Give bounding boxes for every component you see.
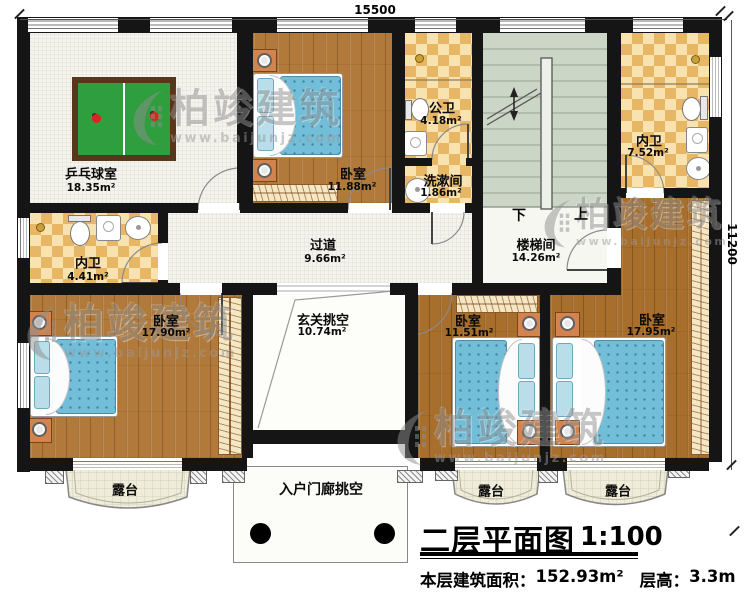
wardrobe	[218, 297, 242, 455]
ac-platform	[45, 470, 64, 484]
wall	[392, 33, 405, 213]
room-area-bedroom-right: 17.95m²	[627, 326, 676, 338]
room-area-bath-right: 7.52m²	[627, 147, 668, 159]
toilet-icon	[700, 96, 708, 120]
plan-scale: 1:100	[580, 522, 663, 552]
ac-platform	[397, 470, 423, 483]
room-area-public-bath: 4.18m²	[420, 115, 461, 127]
dimension-tick	[729, 526, 740, 537]
paddle-icon	[150, 112, 159, 121]
window	[633, 18, 683, 32]
room-stairs	[483, 33, 607, 207]
wardrobe	[250, 184, 338, 202]
window	[567, 459, 665, 470]
room-area-bedroom-left: 17.90m²	[142, 327, 191, 339]
lamp-icon	[522, 316, 537, 331]
window	[415, 18, 456, 32]
wall	[237, 33, 253, 203]
nightstand	[517, 420, 542, 445]
wall	[621, 188, 626, 198]
shower-head-icon	[415, 54, 424, 63]
paddle-icon	[92, 114, 101, 123]
nightstand	[27, 311, 52, 336]
window	[710, 57, 721, 117]
pillow	[518, 343, 535, 379]
column-icon	[374, 523, 395, 544]
window	[73, 459, 182, 470]
nightstand	[517, 312, 542, 337]
nightstand	[251, 49, 277, 72]
pillow	[556, 343, 573, 379]
wall	[182, 458, 247, 471]
lamp-icon	[32, 315, 47, 330]
table-net-line	[123, 83, 125, 155]
wall	[30, 203, 198, 213]
wall	[247, 430, 420, 444]
window	[18, 343, 29, 408]
wall	[390, 283, 405, 295]
terrace-right-label: 露台	[605, 481, 631, 500]
toilet-icon	[682, 97, 701, 121]
porch-void-label: 入户门廊挑空	[279, 479, 363, 499]
nightstand	[27, 418, 52, 443]
room-area-corridor: 9.66m²	[304, 253, 345, 265]
window	[500, 18, 585, 32]
floor-plan-canvas: 柏竣建筑www.baijunjz.com 柏竣建筑www.baijunjz.co…	[0, 0, 750, 596]
wall	[405, 158, 432, 166]
toilet-icon	[70, 221, 90, 246]
wardrobe	[691, 200, 711, 455]
window	[277, 18, 368, 32]
stairs-up-label: 上	[574, 204, 588, 224]
wall	[472, 33, 483, 285]
wall	[30, 458, 73, 471]
room-area-foyer-void: 10.74m²	[298, 326, 347, 338]
room-label-bedroom-top: 卧室	[340, 164, 366, 183]
wall	[537, 458, 567, 471]
shower-head-icon	[36, 223, 45, 232]
wall	[240, 203, 348, 213]
wall	[158, 213, 168, 243]
title-underline	[420, 558, 638, 559]
washer-drum-icon	[410, 137, 421, 148]
shower-head-icon	[691, 55, 700, 64]
dimension-tick	[715, 6, 726, 17]
wall	[405, 203, 430, 213]
nightstand	[555, 420, 580, 445]
ac-platform	[538, 470, 558, 483]
nightstand	[555, 312, 580, 337]
railing-line	[277, 286, 392, 291]
lamp-icon	[522, 424, 537, 439]
room-label-stairwell: 楼梯间	[516, 235, 555, 254]
wall	[664, 188, 709, 198]
room-label-bath-left: 内卫	[75, 253, 101, 272]
wall	[242, 295, 253, 458]
washer-drum-icon	[103, 221, 114, 232]
column-icon	[250, 523, 271, 544]
wall	[607, 33, 621, 198]
washing-machine-icon	[404, 131, 427, 156]
wall	[222, 283, 277, 295]
pillow	[556, 381, 573, 417]
plan-subtitle: 本层建筑面积：152.93m²层高：3.3m	[420, 567, 736, 591]
wall	[465, 203, 472, 213]
title-underline	[420, 552, 638, 556]
room-area-pingpong: 18.35m²	[67, 182, 116, 194]
wall	[405, 283, 418, 458]
dimension-right-label: 11200	[725, 220, 739, 268]
window	[28, 18, 118, 32]
floor-area-value: 152.93m²	[536, 567, 624, 591]
lamp-icon	[257, 53, 272, 68]
wall	[30, 283, 180, 295]
washing-machine-icon	[96, 215, 121, 241]
room-area-bath-left: 4.41m²	[67, 271, 108, 283]
room-area-bedroom-top: 11.88m²	[328, 181, 377, 193]
terrace-left-label: 露台	[112, 480, 138, 499]
nightstand	[251, 159, 277, 182]
floor-height-value: 3.3m	[689, 567, 735, 591]
window	[18, 218, 29, 258]
sink-icon	[686, 157, 711, 180]
room-area-stairwell: 14.26m²	[512, 252, 561, 264]
wall	[607, 198, 621, 228]
floor-area-label: 本层建筑面积：	[420, 567, 536, 591]
room-label-public-bath: 公卫	[429, 98, 455, 117]
wall	[452, 283, 621, 295]
dimension-line-top	[20, 19, 727, 20]
room-area-washroom: 1.86m²	[420, 187, 461, 199]
room-area-bedroom-mid: 11.51m²	[445, 327, 494, 339]
room-label-pingpong: 乒乓球室	[65, 164, 117, 183]
pillow	[257, 78, 274, 113]
lamp-icon	[560, 424, 575, 439]
drain-icon	[136, 225, 141, 230]
stairs-down-label: 下	[512, 205, 526, 225]
drain-icon	[415, 187, 420, 192]
pillow	[34, 376, 50, 409]
pillow	[34, 341, 50, 374]
pillow	[257, 116, 274, 151]
pillow	[518, 381, 535, 417]
lamp-icon	[257, 163, 272, 178]
sink-icon	[125, 216, 151, 240]
wall	[540, 295, 550, 458]
lamp-icon	[32, 422, 47, 437]
drain-icon	[696, 166, 701, 171]
terrace-mid-label: 露台	[478, 481, 504, 500]
dimension-top-label: 15500	[351, 3, 399, 17]
washer-drum-icon	[692, 133, 703, 144]
ac-platform	[190, 470, 207, 484]
wall	[420, 458, 455, 471]
dimension-tick	[723, 11, 734, 22]
wall	[665, 458, 709, 471]
ping-pong-table	[72, 77, 176, 161]
window	[150, 18, 232, 32]
lamp-icon	[560, 316, 575, 331]
washing-machine-icon	[686, 127, 708, 153]
floor-height-label: 层高：	[640, 567, 690, 591]
room-label-corridor: 过道	[310, 235, 336, 254]
window	[455, 459, 537, 470]
